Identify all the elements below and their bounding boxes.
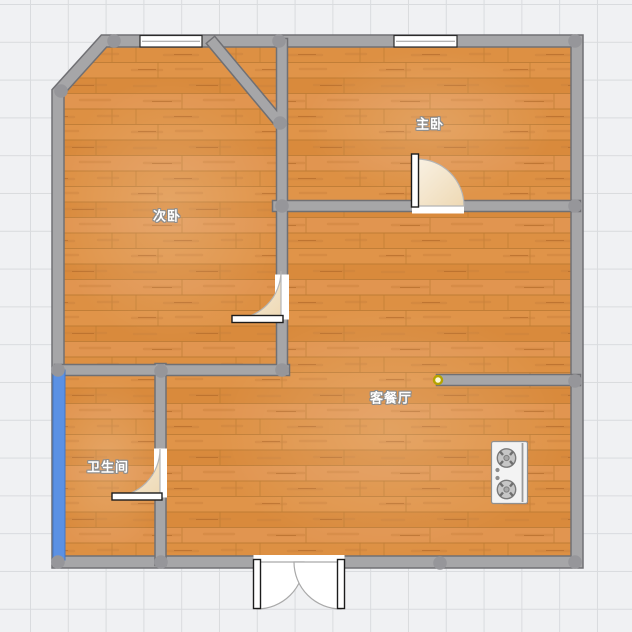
bathroom-door-leaf: [112, 493, 162, 500]
secondary-bedroom-door-leaf: [232, 316, 283, 323]
stove-burner: [497, 449, 515, 467]
floorplan-drawing: [0, 0, 632, 632]
entrance-door-leaf-left: [254, 560, 261, 609]
secondary-bedroom-window[interactable]: [140, 36, 202, 48]
gas-cooktop-icon[interactable]: [492, 442, 528, 504]
floorplan-canvas: 次卧 主卧 客餐厅 卫生间: [0, 0, 632, 632]
master-bedroom-door-leaf: [412, 154, 419, 207]
stove-knob: [495, 476, 499, 480]
stove-burner: [497, 480, 515, 498]
wall-endpoint-icon[interactable]: [434, 376, 442, 384]
stove-knob: [495, 468, 499, 472]
bathroom-balcony-window[interactable]: [53, 370, 65, 560]
master-bedroom-window[interactable]: [394, 36, 457, 48]
entrance-double-door[interactable]: [254, 560, 345, 610]
entrance-door-leaf-right: [338, 560, 345, 609]
